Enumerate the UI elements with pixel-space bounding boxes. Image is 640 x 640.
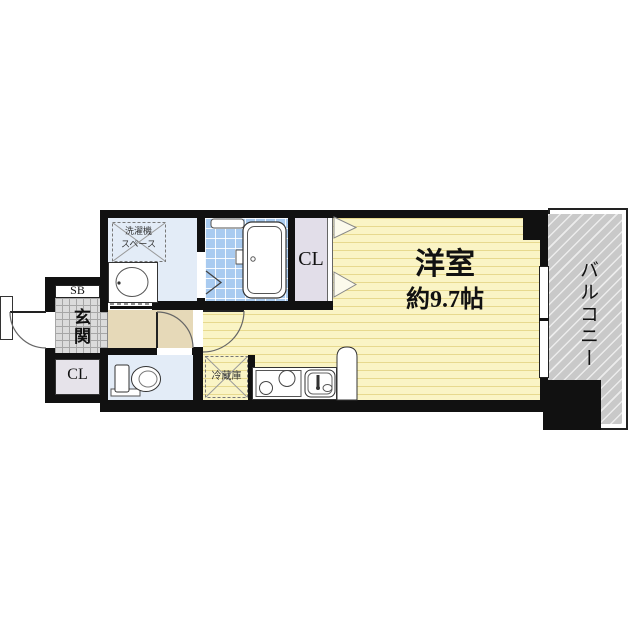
- bath-folding-door-chevron: [206, 271, 221, 294]
- floorplan-canvas: 洋室 約9.7帖 バルコニー CL SB 玄関 CL 洗濯機 スペース 冷蔵庫: [0, 0, 640, 640]
- kitchen-sink: [305, 370, 335, 397]
- washer-space-label-line2: スペース: [110, 239, 167, 249]
- kitchen-end-panel: [337, 347, 357, 400]
- fixtures-layer: [0, 0, 640, 640]
- bathtub: [236, 222, 286, 298]
- fridge-label: 冷蔵庫: [205, 371, 248, 383]
- shoe-box-label: SB: [55, 284, 100, 298]
- closet-folding-door-chevrons: [334, 217, 356, 297]
- toilet-door: [157, 312, 193, 348]
- entrance-door: [1, 297, 47, 349]
- closet-main-label: CL: [293, 248, 329, 271]
- main-room-size: 約9.7帖: [375, 287, 515, 315]
- bath-counter: [211, 219, 244, 228]
- washbasin: [109, 263, 158, 303]
- balcony-label: バルコニー: [574, 240, 598, 390]
- closet-entrance-label: CL: [55, 366, 100, 384]
- washer-space-label-line1: 洗濯機: [110, 226, 167, 236]
- room-door: [203, 311, 244, 352]
- entrance-label: 玄関: [64, 303, 90, 351]
- two-burner-stove: [256, 371, 301, 397]
- main-room-name: 洋室: [380, 248, 510, 283]
- toilet: [111, 365, 161, 396]
